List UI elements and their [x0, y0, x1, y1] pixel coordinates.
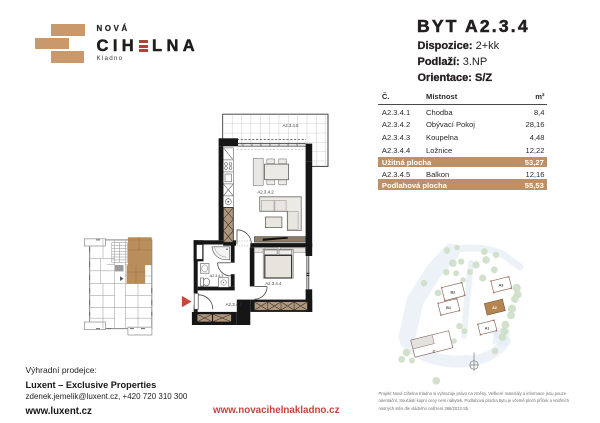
- svg-text:A2.3.4.2: A2.3.4.2: [257, 189, 274, 194]
- svg-text:A2: A2: [492, 306, 497, 310]
- svg-text:A2.3.4.3: A2.3.4.3: [210, 274, 224, 278]
- svg-text:A3: A3: [499, 283, 504, 287]
- svg-text:B1: B1: [446, 306, 451, 310]
- svg-text:A1: A1: [485, 326, 490, 330]
- svg-text:A2.3.4.4: A2.3.4.4: [265, 281, 282, 286]
- svg-text:B2: B2: [450, 291, 455, 295]
- svg-text:C: C: [433, 350, 436, 354]
- svg-text:A2.3.4.5: A2.3.4.5: [282, 123, 299, 128]
- svg-text:A2.3.4.1: A2.3.4.1: [226, 302, 243, 307]
